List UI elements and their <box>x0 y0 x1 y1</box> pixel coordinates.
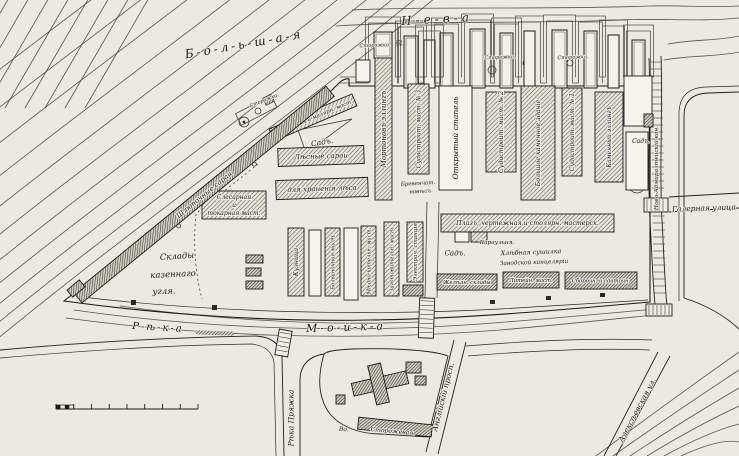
building-label: Плазъ, чертежная и столярн. мастерск. <box>455 220 599 227</box>
map-label-sklady-1: Склады <box>160 251 195 263</box>
scale-bar-end-fill <box>56 405 60 409</box>
building-shape <box>309 230 321 296</box>
building-bolvanochnaya-mast: Болваночная маст. <box>325 228 340 296</box>
map-label-storozhka-3: Сторожка. <box>557 54 589 61</box>
historical-shipyard-map: Мортоновъ эллингъСудостроит. маст. № 3От… <box>0 0 739 456</box>
alekseevskaya-street-line <box>604 352 658 456</box>
building-shape <box>406 362 421 373</box>
map-label-moika: М-о-й-к-а <box>305 319 386 335</box>
building-shed-b <box>344 228 358 300</box>
neva-flow-line <box>668 36 739 44</box>
building-label: Открытый стапель <box>451 97 460 180</box>
building-east-dark <box>644 114 653 127</box>
building-small-box <box>403 285 423 296</box>
quay-bollard <box>131 300 136 305</box>
building-label: Литейн. маст. <box>508 278 553 284</box>
building-shed-a <box>309 230 321 296</box>
building-shape <box>246 281 263 289</box>
building-label: Болваночная маст. <box>330 234 336 291</box>
ship-slip <box>608 35 619 88</box>
building-coal-shed-2 <box>246 268 261 276</box>
map-label-naves-1: Бревенчат. <box>400 180 436 188</box>
pier-hut <box>396 40 402 46</box>
building-label: Кузница <box>293 248 300 278</box>
map-label-sad-3: Садъ. <box>445 249 466 257</box>
map-label-yard-label-1: Хлѣбная сушилка <box>500 248 562 257</box>
map-canvas: Мортоновъ эллингъСудостроит. маст. № 3От… <box>0 0 739 456</box>
building-sudostroit-mast-1: Судостроит. маст. № 1 <box>562 88 582 176</box>
boundary-dotted <box>195 214 202 299</box>
corner-hatch-line <box>65 0 130 108</box>
building-church-sq-1 <box>406 362 421 373</box>
galernaya-street-line <box>669 193 739 197</box>
pier-capstan <box>255 108 261 114</box>
fan-curve <box>664 424 739 456</box>
building-medno-kotelnaya-mast: Мѣдно-котельн. маст. <box>361 226 376 296</box>
map-label-alekseevskaya-ulitsa: Алексѣевская ул. <box>616 377 658 445</box>
building-sudostroit-mast-2: Судостроит. маст. № 2 <box>486 91 516 173</box>
quay-bollard <box>600 293 605 297</box>
map-label-reka: Р-ѣ-к-а <box>131 321 184 335</box>
bridge-deck <box>646 304 672 316</box>
map-label-sklady-3: угля. <box>151 286 175 297</box>
map-label-bolshaya-neva: Б-о-л-ь-ш-а-я <box>183 27 305 62</box>
building-shape <box>336 395 345 404</box>
building-shape <box>246 255 263 263</box>
map-label-south-street-1: Во. <box>338 426 349 434</box>
map-label-karaulnya: Караульня. <box>479 240 515 246</box>
moika-south-bank <box>0 336 284 456</box>
road-line <box>425 202 427 298</box>
bridge-deck <box>275 329 292 357</box>
building-church-sq-2 <box>415 376 426 385</box>
building-quay-shed <box>356 60 370 82</box>
map-label-novo-admiralteysky-canal: Ново-Адмиралтейскій кан. <box>654 126 660 211</box>
building-shape <box>644 114 653 127</box>
bridge <box>275 329 292 357</box>
building-label: Желѣзн. склады <box>442 280 490 286</box>
ship-slip <box>470 29 485 88</box>
corner-hatch-line <box>85 0 150 108</box>
building-label: Судостроит. маст. № 3 <box>416 90 423 168</box>
fan-curve <box>647 406 739 456</box>
building-plaz-chertezhnaya: Плазъ, чертежная и столярн. мастерск. <box>441 214 614 232</box>
building-south-sq <box>336 395 345 404</box>
building-shape <box>246 268 261 276</box>
building-shape <box>415 376 426 385</box>
fan-curve <box>681 441 739 456</box>
corner-hatch-line <box>0 0 30 108</box>
south-quay-line <box>82 297 648 313</box>
neva-flow-line <box>352 6 739 10</box>
building-zagotovit-mast: Заготовительн. маст. <box>384 222 399 296</box>
building-bolshoe-kamennoe-zdanie: Большое каменное зданіе <box>521 86 555 200</box>
bridge <box>418 298 434 338</box>
building-shape <box>356 60 370 82</box>
map-label-yard-label-2: Заводской канцеляріи <box>500 259 569 267</box>
building-sborochnaya-sdatochnaya: Сборочн. и сдаточн. <box>565 272 637 289</box>
south-bank-street <box>466 339 652 346</box>
map-label-storozhka-4: Сторожка. <box>249 92 280 109</box>
corner-hatch-line <box>45 0 110 108</box>
building-label: Заготовительн. маст. <box>389 226 395 292</box>
map-label-naves-2: навѣсъ. <box>409 188 433 195</box>
building-dlya-khraneniya-lesa: для храненія лѣса <box>276 177 369 199</box>
building-liteynaya-mast: Литейн. маст. <box>503 272 559 288</box>
building-label: Большое каменное зданіе <box>535 99 542 187</box>
building-label: Каменный эллингъ <box>606 106 613 168</box>
building-shed-c <box>455 232 469 242</box>
map-label-storozhka-2: Сторожка. <box>484 54 516 61</box>
moored-barge <box>196 330 234 335</box>
corner-hatch-line <box>25 0 90 108</box>
building-shape <box>455 232 469 242</box>
building-kuznitsa: Кузница <box>288 228 304 296</box>
scale-bar-end-fill <box>65 405 69 409</box>
building-label: Электрич. станція <box>413 223 419 281</box>
ship-slip <box>424 40 435 88</box>
building-label: Судостроит. маст. № 2 <box>498 91 505 173</box>
building-coal-shed-1 <box>246 255 263 263</box>
map-label-reka-pryazhka: Рѣка Пряжка <box>287 390 296 448</box>
quay-bollard <box>490 300 495 304</box>
corner-hatch-line <box>0 0 50 108</box>
map-label-sad-2: Садъ. <box>632 138 650 145</box>
bridge <box>646 304 672 316</box>
quay-bollard <box>212 305 217 310</box>
building-shape <box>403 285 423 296</box>
quay-bollard <box>546 296 551 300</box>
building-lesnye-sarai: Лѣсные сараи <box>278 146 365 167</box>
map-label-sklady-2: казеннаго <box>150 269 196 281</box>
building-morton-elling: Мортоновъ эллингъ <box>375 58 392 200</box>
east-block-shore <box>684 298 739 329</box>
pier-capstan-dot <box>243 121 246 124</box>
neva-flow-line <box>664 52 739 60</box>
building-label: Мѣдно-котельн. маст. <box>366 227 372 295</box>
map-label-neva: Н-е-в-а <box>400 10 474 28</box>
building-coal-shed-3 <box>246 281 263 289</box>
moika-south-bank-inner <box>0 344 276 456</box>
building-label: Мортоновъ эллингъ <box>380 90 388 168</box>
building-sudostroit-mast-3: Судостроит. маст. № 3 <box>408 84 429 174</box>
building-kamenny-elling: Каменный эллингъ <box>595 92 623 182</box>
corner-hatch-line <box>5 0 70 108</box>
map-label-galernaya-ulitsa: Галерная улица <box>671 202 736 213</box>
building-elektro-stantsiya: Электрич. станція <box>407 222 423 282</box>
canal-east-bank <box>661 56 667 307</box>
ship-slip <box>524 31 535 88</box>
south-bank-street <box>468 349 650 356</box>
building-shape <box>344 228 358 300</box>
building-zhelezn-sklady: Желѣзн. склады <box>437 274 497 290</box>
building-otkryty-stapel: Открытый стапель <box>439 86 472 190</box>
corner-hatch-line <box>0 0 10 108</box>
map-label-storozhka-1: Сторожка. <box>359 42 391 49</box>
building-label: Судостроит. маст. № 1 <box>569 93 576 171</box>
building-label: Сборочн. и сдаточн. <box>572 277 631 284</box>
